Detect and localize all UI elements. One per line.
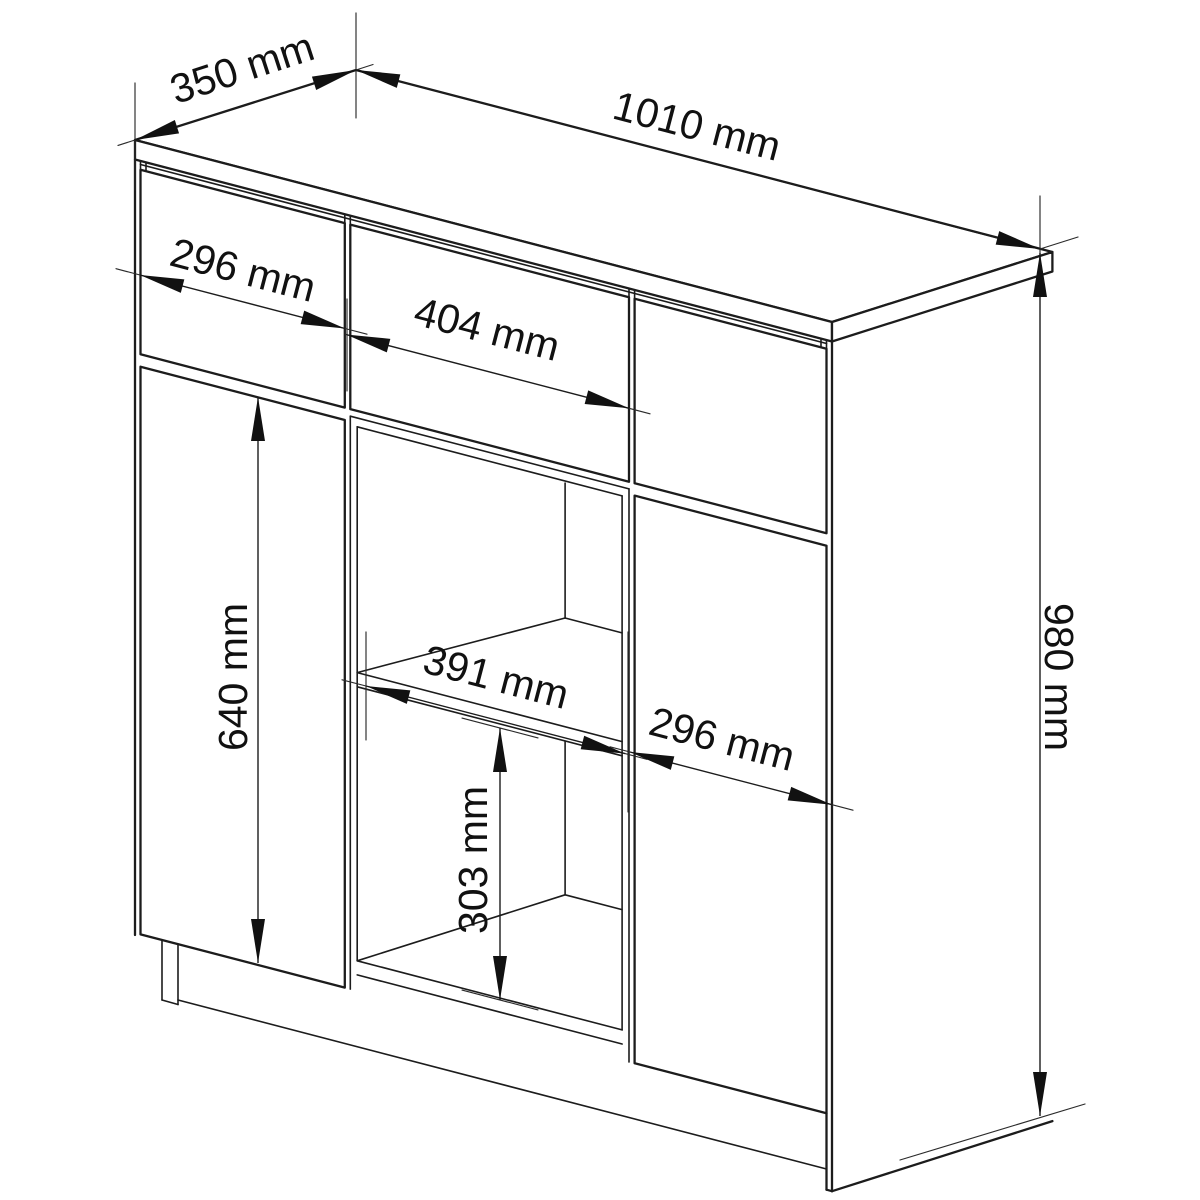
label-lower-compartment-height: 303 mm bbox=[450, 786, 496, 934]
right-door bbox=[635, 496, 827, 1114]
cabinet-technical-drawing: 350 mm 1010 mm 980 mm 296 mm 404 mm 640 … bbox=[0, 0, 1200, 1200]
label-height: 980 mm bbox=[1036, 603, 1082, 751]
label-left-door-height: 640 mm bbox=[210, 603, 256, 751]
open-compartment bbox=[350, 416, 629, 1062]
drawing-canvas: 350 mm 1010 mm 980 mm 296 mm 404 mm 640 … bbox=[0, 0, 1200, 1200]
right-drawer-front bbox=[635, 299, 827, 534]
